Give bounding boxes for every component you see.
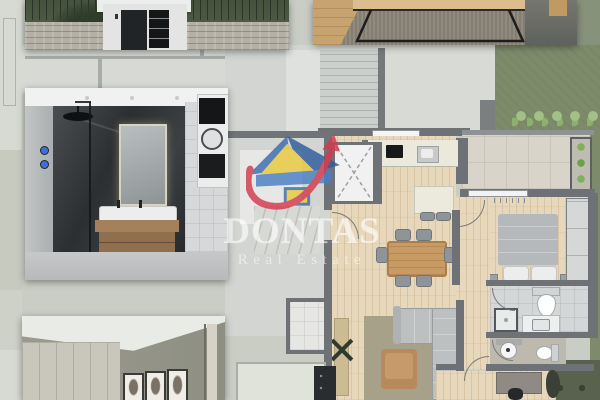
plan-left-block [0, 150, 22, 290]
bedroom1-window [468, 190, 528, 197]
cooktop [386, 145, 403, 158]
vanity-cabinet [99, 232, 175, 252]
apartment-right-wall [588, 193, 598, 338]
door-frame [207, 324, 217, 400]
island-stool-1 [420, 212, 435, 221]
wc-bottom-wall [486, 364, 594, 371]
elevator-right-wall [376, 142, 382, 204]
entrance-shelf-niche [149, 10, 169, 48]
framed-print-1 [123, 373, 144, 400]
island-stool-2 [436, 212, 451, 221]
bedroom2-plant [546, 370, 560, 398]
wardrobe-panels [22, 342, 120, 400]
entrance-door [121, 10, 147, 50]
stair-right-wall [378, 48, 385, 134]
dining-table [387, 241, 447, 277]
shower-glass-topbar [75, 101, 91, 103]
plan-left-block2 [0, 290, 22, 350]
vanity-basin [532, 319, 550, 331]
dining-chair-1 [395, 229, 411, 241]
core-top-wall [228, 131, 332, 138]
dark-wall-stub [480, 100, 495, 133]
plan-wall-stub [98, 56, 102, 90]
coffee-table-interior-photo [313, 0, 577, 45]
elevator-shaft [332, 142, 376, 204]
wc-toilet-tank [551, 344, 559, 362]
coffee-table-top [385, 353, 413, 379]
ceiling-spot-3 [175, 96, 179, 100]
lawn-strip-topcorner [577, 0, 600, 45]
ceiling-spot-1 [85, 96, 89, 100]
bed-duvet [498, 214, 558, 266]
shower-knob-2 [40, 160, 49, 169]
laundry-top-appliance [199, 98, 225, 124]
planter-box [570, 137, 592, 191]
dining-chair-5 [376, 247, 388, 263]
vanity-faucet-2 [139, 200, 142, 208]
framed-print-2 [145, 371, 166, 400]
entrance-exterior-photo [25, 0, 289, 50]
laundry-drum [201, 128, 223, 150]
bedroom2-chair [508, 388, 523, 400]
staircase-mid [254, 206, 320, 254]
door-frame-edge [204, 324, 206, 400]
bathroom-interior-photo [25, 88, 228, 280]
sofa-armrest [393, 306, 401, 344]
backlit-mirror [119, 124, 167, 206]
bedroom-interior-photo [22, 316, 225, 400]
real-estate-collage: DONTAS Real Estate [0, 0, 600, 400]
plan-left-outline [3, 18, 16, 106]
vanity-faucet-1 [117, 200, 120, 208]
shower-drain [504, 318, 508, 322]
core-apartment-wall-upper [324, 136, 332, 210]
elevator-x-icon [335, 145, 373, 201]
framed-print-3 [167, 369, 188, 400]
dining-chair-3 [395, 275, 411, 287]
door-lamp [115, 14, 118, 19]
vanity-counter [95, 220, 179, 232]
bath-floor-photo [25, 252, 228, 280]
cabinet-wood-strip [549, 0, 567, 16]
dining-chair-4 [416, 275, 432, 287]
laundry-lower-appliance [199, 154, 225, 178]
dining-chair-2 [416, 229, 432, 241]
stair-landing-upper [286, 50, 320, 132]
bedroom2-top-wall [436, 364, 462, 370]
hedge-row [512, 104, 600, 130]
mint-slab [236, 362, 326, 400]
staircase-upper [320, 50, 378, 132]
ceiling-spot-2 [130, 96, 134, 100]
kitchen-island [414, 186, 454, 214]
elevator-2 [286, 298, 328, 354]
lower-kitchen-block [314, 366, 336, 400]
shower-knob-1 [40, 146, 49, 155]
kitchen-sink-basin [421, 149, 433, 158]
